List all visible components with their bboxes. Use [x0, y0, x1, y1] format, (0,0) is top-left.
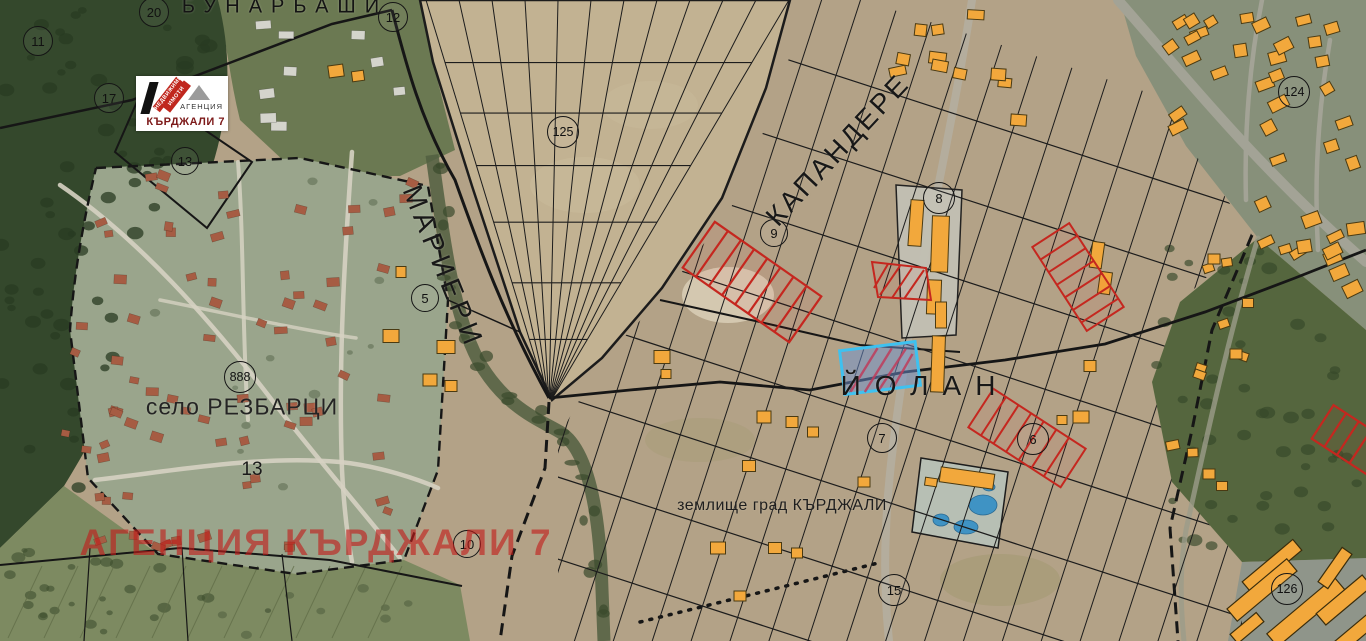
parcel-marker[interactable]: 7: [867, 423, 897, 453]
selected-parcel-blue[interactable]: [840, 342, 921, 395]
agency-watermark: АГЕНЦИЯ КЪРДЖАЛИ 7: [79, 522, 552, 564]
logo-agency-word: АГЕНЦИЯ: [180, 102, 223, 111]
parcel-marker[interactable]: 15: [878, 574, 910, 606]
hatched-parcel-red-2[interactable]: [872, 262, 931, 300]
parcel-marker[interactable]: 17: [94, 83, 124, 113]
agency-logo: НЕДВИЖИМИ ИМОТИ АГЕНЦИЯ КЪРДЖАЛИ 7: [136, 76, 228, 131]
parcel-marker[interactable]: 124: [1278, 76, 1310, 108]
logo-roof-icon: [188, 85, 210, 100]
map-canvas[interactable]: 1120121713125598888761015124126 БУНАРБАШ…: [0, 0, 1366, 641]
parcel-marker[interactable]: 888: [224, 361, 256, 393]
parcel-marker[interactable]: 6: [1017, 423, 1049, 455]
parcel-marker[interactable]: 126: [1271, 573, 1303, 605]
parcel-marker[interactable]: 5: [411, 284, 439, 312]
parcel-marker[interactable]: 125: [547, 116, 579, 148]
parcel-marker[interactable]: 13: [171, 147, 199, 175]
logo-agency-name: КЪРДЖАЛИ 7: [136, 116, 225, 128]
parcel-marker[interactable]: 8: [923, 182, 955, 214]
parcel-marker[interactable]: 12: [378, 2, 408, 32]
parcel-marker[interactable]: 11: [23, 26, 53, 56]
parcel-marker[interactable]: 9: [760, 219, 788, 247]
